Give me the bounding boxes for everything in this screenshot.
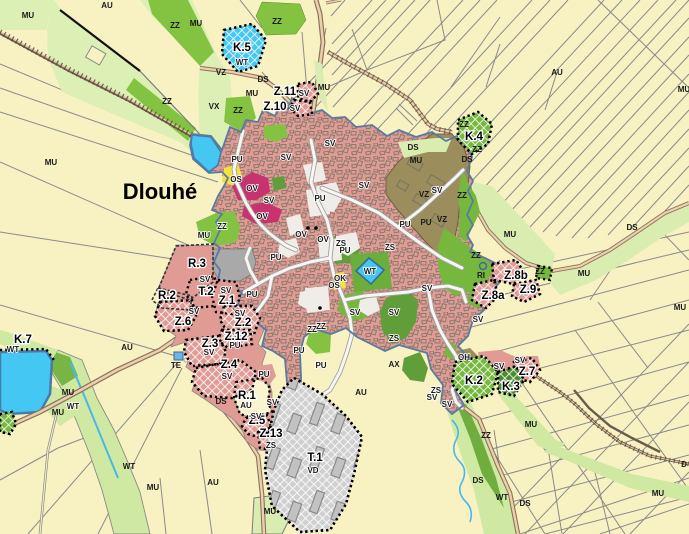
svg-text:ZZ: ZZ (472, 145, 482, 154)
svg-text:ZZ: ZZ (170, 21, 180, 30)
svg-text:Z.6: Z.6 (175, 316, 192, 328)
svg-text:SV: SV (494, 362, 505, 371)
svg-text:SV: SV (473, 315, 484, 324)
svg-text:MU: MU (318, 83, 331, 92)
svg-text:MU: MU (246, 89, 259, 98)
svg-text:WT: WT (123, 462, 136, 471)
svg-text:SV: SV (290, 104, 301, 113)
svg-text:PU: PU (293, 346, 304, 355)
svg-text:VZ: VZ (437, 215, 447, 224)
svg-text:AU: AU (551, 68, 563, 77)
svg-text:DS: DS (257, 75, 269, 84)
svg-text:PU: PU (339, 246, 350, 255)
svg-text:Z.4: Z.4 (221, 359, 238, 371)
svg-text:MU: MU (578, 269, 591, 278)
svg-text:DS: DS (461, 155, 473, 164)
svg-text:K.2: K.2 (465, 375, 483, 387)
svg-text:SV: SV (204, 348, 215, 357)
svg-text:TE: TE (171, 361, 182, 370)
svg-text:ZZ: ZZ (316, 322, 326, 331)
svg-text:ZS: ZS (431, 386, 442, 395)
svg-text:WT: WT (364, 267, 377, 276)
svg-text:DS: DS (407, 143, 419, 152)
svg-text:Z.8b: Z.8b (504, 270, 528, 282)
svg-text:VX: VX (209, 102, 220, 111)
svg-text:AU: AU (121, 343, 133, 352)
svg-text:MU: MU (504, 230, 517, 239)
svg-text:SV: SV (325, 139, 336, 148)
svg-text:OH: OH (458, 353, 470, 362)
svg-text:ZZ: ZZ (471, 251, 481, 260)
svg-text:WT: WT (496, 493, 509, 502)
svg-text:Z.8a: Z.8a (481, 290, 505, 302)
svg-text:ZZ: ZZ (457, 191, 467, 200)
svg-text:K.5: K.5 (233, 42, 252, 54)
svg-text:OS: OS (230, 175, 242, 184)
svg-text:SV: SV (442, 400, 453, 409)
svg-text:MU: MU (62, 388, 75, 397)
svg-text:PU: PU (314, 194, 325, 203)
svg-text:MU: MU (52, 408, 65, 417)
svg-text:MU: MU (147, 483, 160, 492)
svg-text:OV: OV (246, 184, 258, 193)
svg-text:MU: MU (674, 303, 687, 312)
svg-text:SV: SV (281, 153, 292, 162)
svg-text:SV: SV (235, 309, 246, 318)
svg-text:VD: VD (307, 466, 318, 475)
svg-text:OV: OV (256, 212, 268, 221)
svg-text:PU: PU (315, 361, 326, 370)
svg-text:MU: MU (198, 231, 211, 240)
svg-text:Z.7: Z.7 (519, 366, 536, 378)
svg-text:ZZ: ZZ (459, 120, 469, 129)
svg-text:DS: DS (626, 223, 638, 232)
svg-text:PU: PU (231, 155, 242, 164)
svg-text:MU: MU (678, 85, 689, 94)
svg-text:SV: SV (515, 356, 526, 365)
svg-text:Z.13: Z.13 (259, 428, 282, 440)
svg-text:AU: AU (207, 478, 219, 487)
svg-text:SV: SV (359, 181, 370, 190)
svg-text:Z.11: Z.11 (274, 86, 297, 98)
svg-text:SV: SV (222, 372, 233, 381)
svg-text:SV: SV (264, 196, 275, 205)
svg-text:T.2: T.2 (198, 286, 213, 298)
svg-text:DS: DS (472, 476, 484, 485)
svg-text:PU: PU (399, 220, 410, 229)
svg-text:SV: SV (299, 89, 310, 98)
svg-text:Z.9: Z.9 (520, 284, 537, 296)
svg-text:WT: WT (67, 402, 80, 411)
svg-text:SV: SV (432, 186, 443, 195)
svg-text:WT: WT (7, 345, 20, 354)
svg-text:Dlouhé: Dlouhé (123, 179, 198, 204)
svg-text:PU: PU (246, 290, 257, 299)
svg-text:MU: MU (45, 158, 58, 167)
svg-text:SV: SV (422, 284, 433, 293)
svg-text:ZZ: ZZ (272, 17, 282, 26)
svg-text:OV: OV (317, 235, 329, 244)
svg-text:SV: SV (350, 308, 361, 317)
svg-text:OV: OV (295, 230, 307, 239)
svg-text:DS: DS (519, 499, 531, 508)
svg-text:ZZ: ZZ (217, 222, 227, 231)
svg-text:MU: MU (652, 489, 665, 498)
svg-text:MU: MU (525, 420, 538, 429)
svg-text:AU: AU (355, 388, 367, 397)
svg-text:AX: AX (388, 360, 400, 369)
svg-text:R.3: R.3 (188, 258, 206, 270)
svg-text:ZZ: ZZ (535, 267, 545, 276)
svg-text:ZS: ZS (389, 334, 400, 343)
svg-text:K.4: K.4 (465, 131, 484, 143)
svg-text:ZZ: ZZ (481, 431, 491, 440)
svg-text:OK: OK (334, 274, 346, 283)
svg-text:AU: AU (240, 401, 252, 410)
svg-text:SV: SV (389, 308, 400, 317)
svg-text:PU: PU (270, 253, 281, 262)
svg-text:Z.10: Z.10 (263, 101, 286, 113)
svg-text:PU: PU (420, 218, 431, 227)
svg-text:DS: DS (215, 397, 227, 406)
svg-text:PU: PU (229, 341, 240, 350)
svg-text:RI: RI (477, 271, 485, 280)
svg-text:ZS: ZS (266, 441, 277, 450)
svg-text:D: D (681, 460, 687, 469)
svg-text:R.2: R.2 (158, 290, 176, 302)
svg-text:T.1: T.1 (307, 452, 323, 464)
svg-text:MU: MU (410, 156, 423, 165)
svg-text:AU: AU (101, 1, 113, 10)
svg-text:ZS: ZS (385, 243, 396, 252)
svg-text:K.3: K.3 (502, 381, 520, 393)
svg-text:PU: PU (258, 370, 269, 379)
svg-text:Z.2: Z.2 (235, 317, 252, 329)
svg-text:WT: WT (236, 58, 249, 67)
svg-text:SV: SV (189, 307, 200, 316)
svg-text:SV: SV (200, 275, 211, 284)
svg-text:VZ: VZ (216, 68, 226, 77)
svg-text:MU: MU (190, 19, 203, 28)
svg-text:ZZ: ZZ (233, 106, 243, 115)
svg-text:VZ: VZ (419, 190, 429, 199)
svg-text:MU: MU (22, 11, 35, 20)
svg-text:SV: SV (267, 398, 278, 407)
svg-text:Z.1: Z.1 (219, 295, 236, 307)
svg-text:MU: MU (264, 507, 277, 516)
svg-text:SV: SV (251, 412, 262, 421)
svg-text:SV: SV (221, 286, 232, 295)
svg-text:ZZ: ZZ (162, 97, 172, 106)
